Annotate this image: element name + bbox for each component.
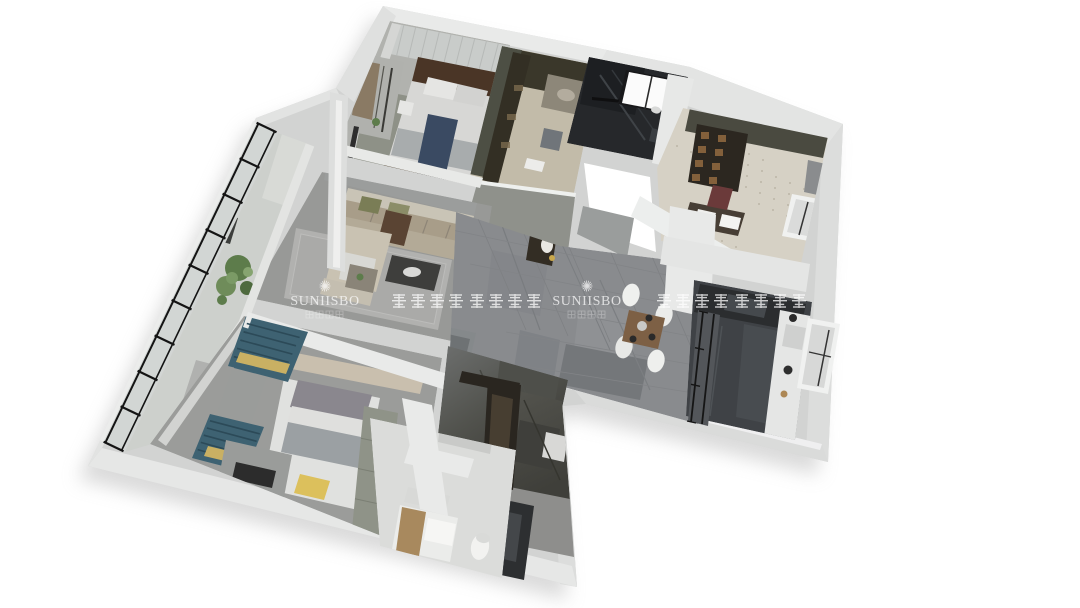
- svg-text:SUNIISBO: SUNIISBO: [552, 294, 621, 309]
- svg-text:SUNIISBO: SUNIISBO: [290, 294, 359, 309]
